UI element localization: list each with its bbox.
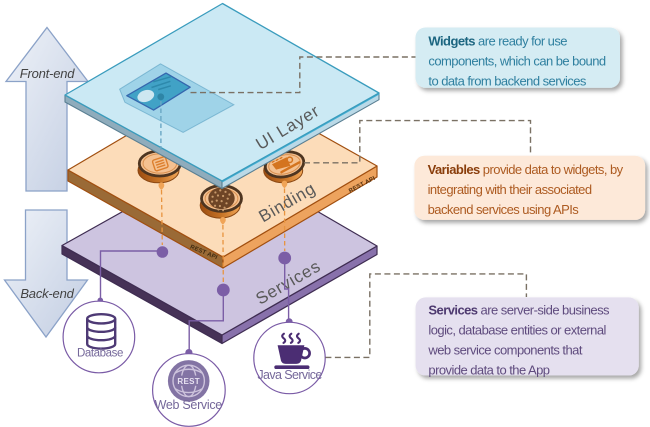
svg-text:web service components that: web service components that (427, 342, 582, 357)
svg-text:Back-end: Back-end (20, 286, 74, 301)
svg-text:integrating with their associa: integrating with their associated (428, 182, 592, 197)
svg-text:Database: Database (77, 348, 123, 360)
svg-text:Variables provide data to widg: Variables provide data to widgets, by (428, 162, 624, 177)
svg-text:REST: REST (177, 377, 200, 386)
svg-text:Services are server-side busin: Services are server-side business (428, 302, 610, 317)
svg-text:backend services using APIs: backend services using APIs (428, 202, 580, 217)
svg-text:provide data to the App: provide data to the App (428, 362, 549, 377)
svg-text:Front-end: Front-end (20, 66, 76, 81)
svg-text:Java Service: Java Service (257, 368, 322, 382)
svg-text:components, which can be bound: components, which can be bound (428, 54, 606, 69)
svg-text:to data from backend services: to data from backend services (428, 74, 587, 89)
svg-text:Web Service: Web Service (155, 398, 223, 412)
svg-text:Widgets are ready for use: Widgets are ready for use (428, 34, 567, 49)
svg-text:logic, database entities or ex: logic, database entities or external (428, 322, 606, 337)
